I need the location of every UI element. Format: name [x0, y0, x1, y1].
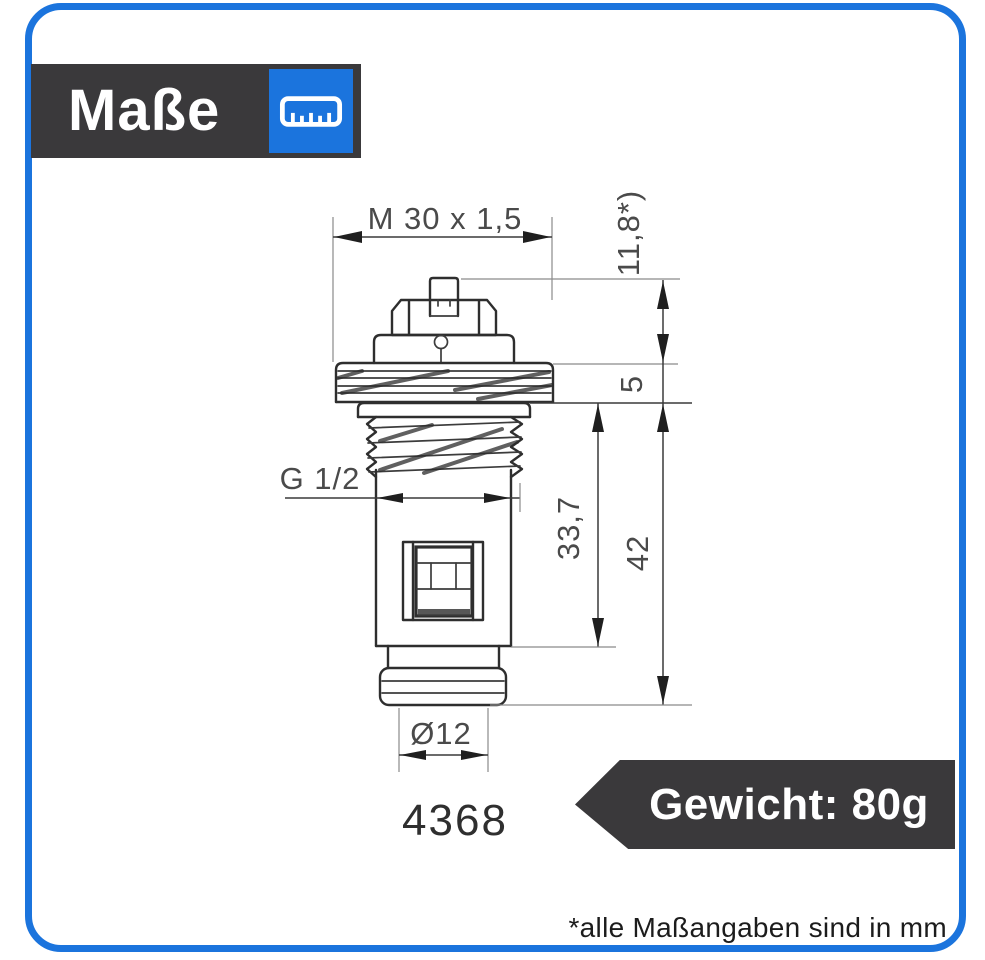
- dim-42-label: 42: [620, 535, 655, 571]
- dim-m30-label: M 30 x 1,5: [368, 201, 523, 236]
- dim-m30: M 30 x 1,5: [333, 201, 552, 362]
- weight-label: Gewicht: 80g: [601, 783, 929, 827]
- dim-5: 5: [614, 363, 663, 403]
- dim-11-8-label: 11,8*): [611, 190, 646, 276]
- dim-dia12-label: Ø12: [410, 716, 472, 751]
- part-number-label: 4368: [402, 796, 508, 845]
- dim-33-7: 33,7: [511, 403, 692, 647]
- dim-dia12: Ø12: [399, 708, 488, 772]
- dim-g12: G 1/2: [280, 461, 520, 512]
- dim-5-label: 5: [614, 375, 649, 393]
- dim-g12-label: G 1/2: [280, 461, 361, 496]
- footnote-text: *alle Maßangaben sind in mm: [568, 912, 947, 944]
- weight-badge: Gewicht: 80g: [575, 760, 955, 849]
- dim-33-7-label: 33,7: [551, 496, 586, 560]
- dim-42: 42: [490, 403, 692, 705]
